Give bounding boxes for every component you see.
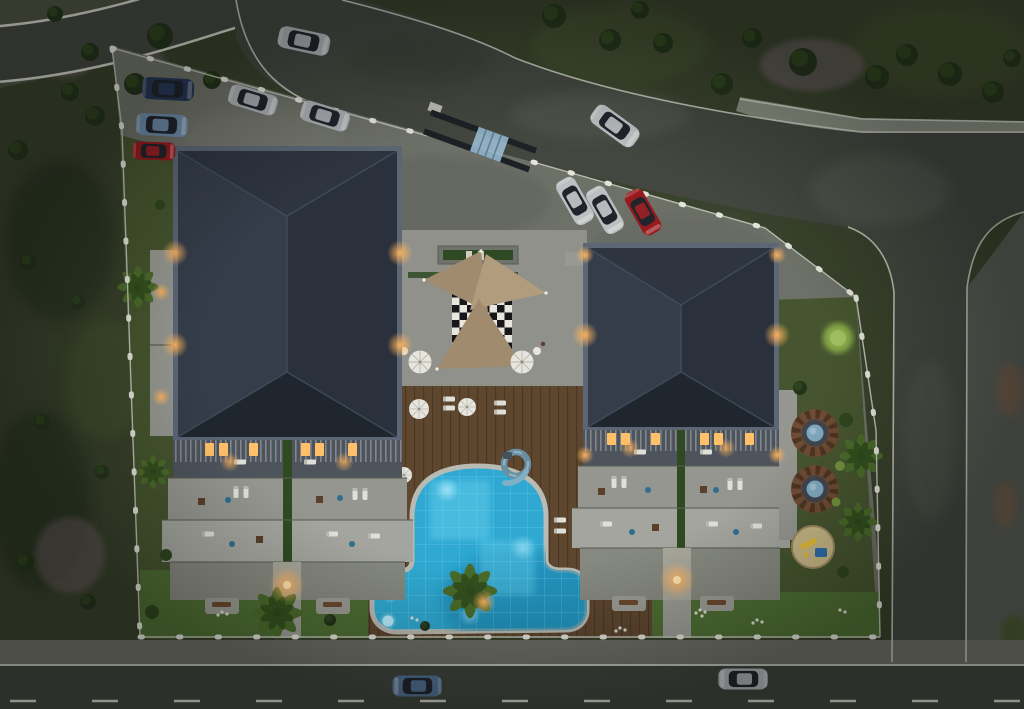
scene-canvas: Aerial night 3D render of a residential … [0,0,1024,709]
aerial-site-render: Aerial night 3D render of a residential … [0,0,1024,709]
night-vignette [0,0,1024,709]
